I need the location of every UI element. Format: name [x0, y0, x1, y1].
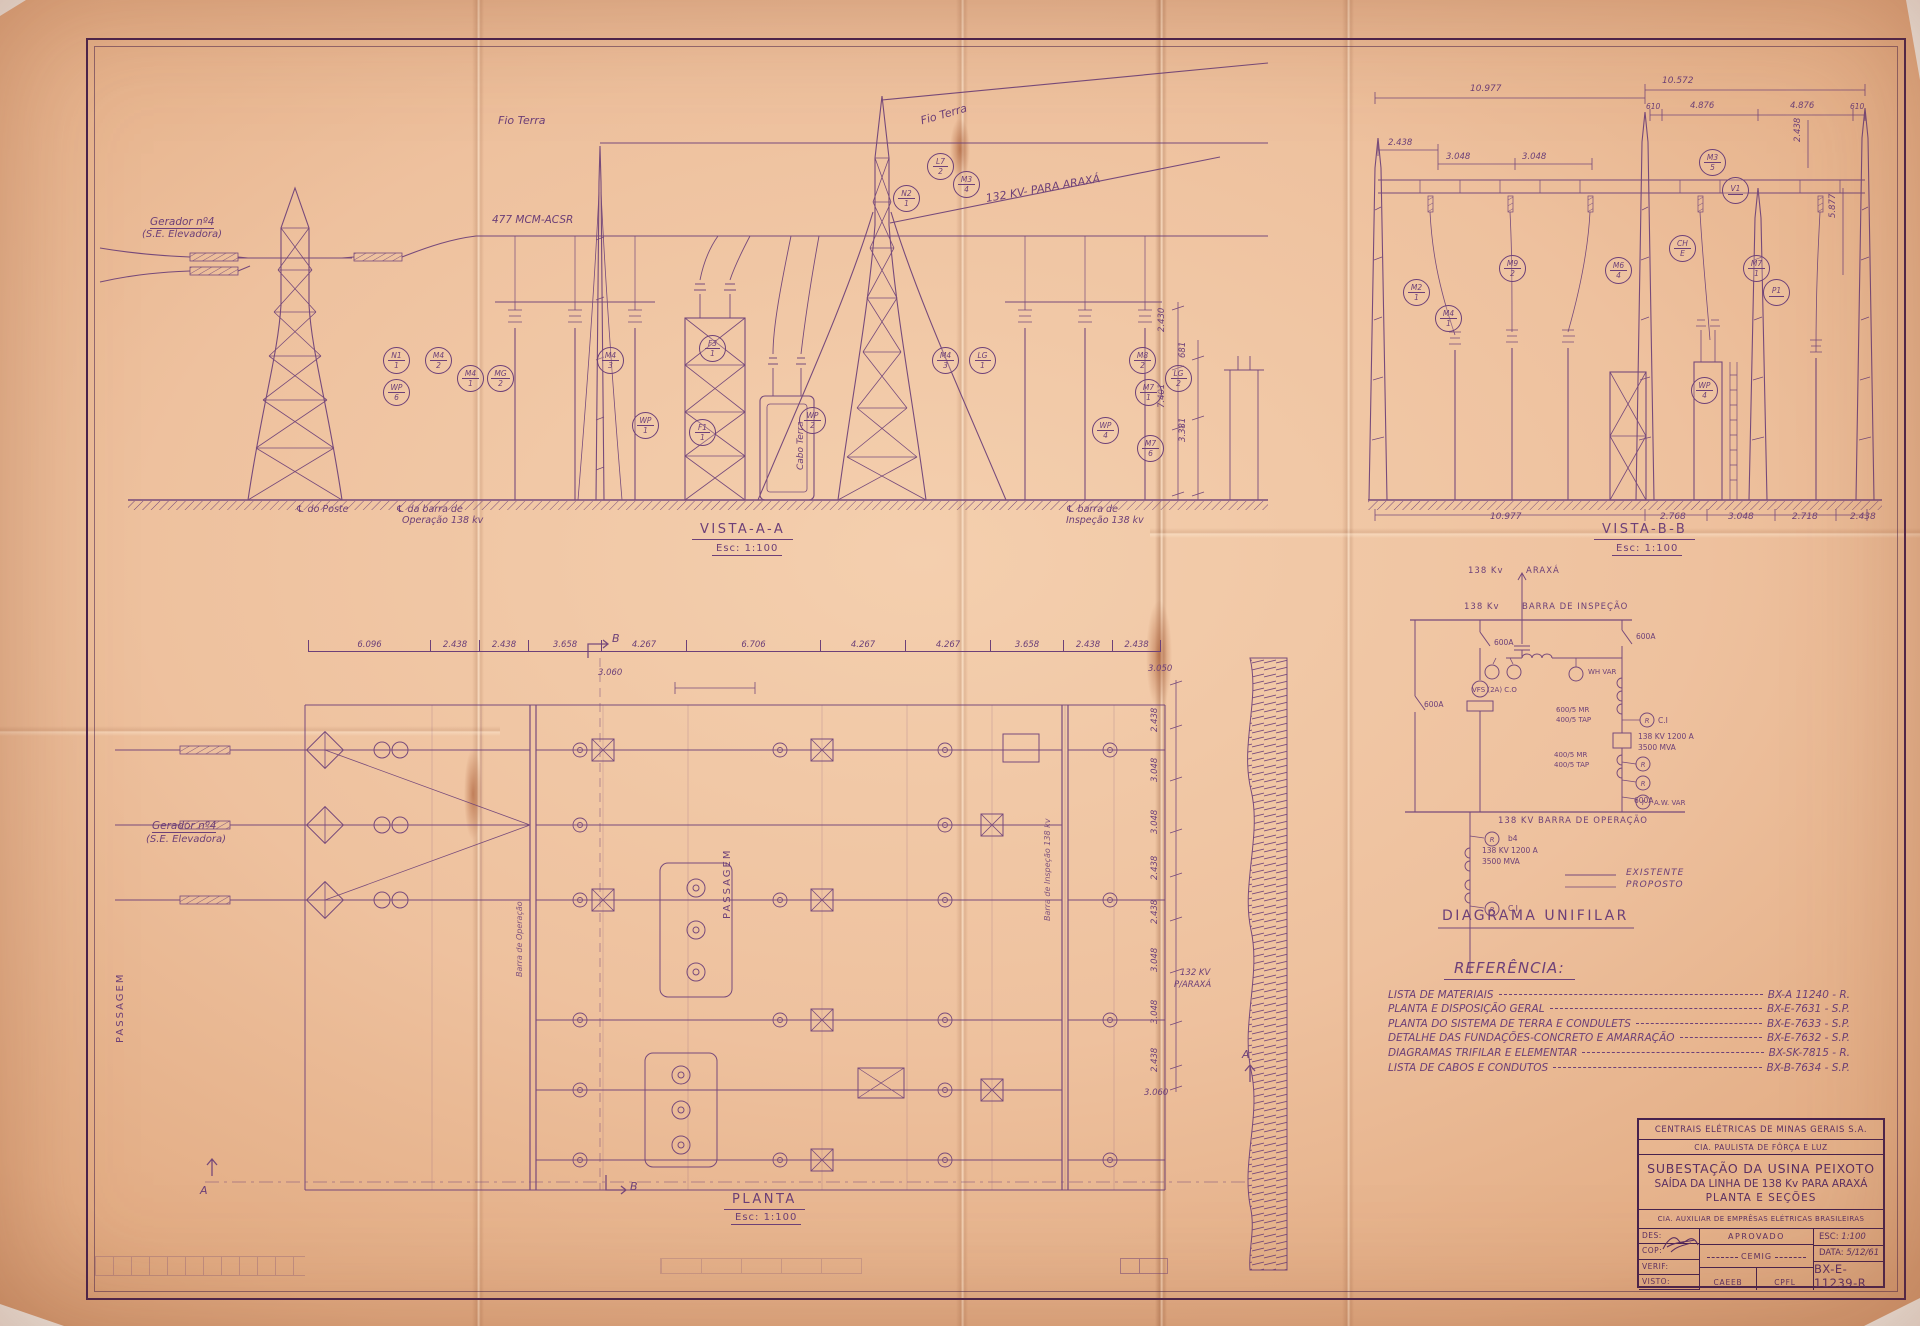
equipment-balloon: M34 — [953, 171, 980, 198]
ct-ratio-label: 400/5 MR — [1554, 751, 1587, 759]
centerline-poste-label: ℄ do Poste — [296, 504, 348, 515]
dim-label: 681 — [1178, 342, 1188, 358]
conductor-label: 477 MCM-ACSR — [492, 214, 573, 226]
planta-drawing — [100, 630, 1290, 1290]
paper-corner — [1906, 0, 1920, 80]
paper-corner — [0, 1304, 64, 1326]
des-label: DES: — [1639, 1229, 1699, 1244]
dim-label: 2.768 — [1660, 512, 1686, 522]
legend-existente-label: EXISTENTE — [1626, 868, 1684, 878]
relay-letter: R — [1641, 761, 1646, 769]
unifilar-kv-label: 138 Kv — [1468, 566, 1504, 576]
gerador-sublabel: (S.E. Elevadora) — [142, 229, 222, 240]
vista-aa-scale: Esc: 1:100 — [712, 543, 782, 556]
dim-label: 3.060 — [1144, 1088, 1168, 1098]
drawing-number: BX-E-11239-R — [1814, 1262, 1883, 1290]
relay-letter: R — [1645, 717, 1650, 725]
equipment-balloon: L72 — [927, 153, 954, 180]
section-a-label: A — [200, 1184, 208, 1197]
cpfl-cell: CPFL — [1757, 1268, 1813, 1290]
dim-label: 3.048 — [1150, 1000, 1160, 1024]
section-b-label: B — [612, 632, 620, 645]
planta-scale: Esc: 1:100 — [731, 1212, 801, 1225]
unifilar-title: DIAGRAMA UNIFILAR — [1442, 908, 1629, 924]
centerline-operacao-label2: Operação 138 kv — [402, 515, 483, 526]
reference-title: REFERÊNCIA: — [1444, 959, 1575, 980]
drawing-title-1: SUBESTAÇÃO DA USINA PEIXOTO — [1647, 1161, 1875, 1176]
barra-operacao-label: Barra de Operação — [515, 901, 524, 977]
dim-label: 3.050 — [1148, 664, 1172, 674]
section-a-label: A — [1242, 1048, 1250, 1061]
reference-item: LISTA DE MATERIAISBX-A 11240 - R. — [1388, 989, 1850, 1001]
equipment-balloon: WP2 — [799, 407, 826, 434]
dim-label: 2.438 — [1150, 856, 1160, 880]
dim-label: 2.438 — [1850, 512, 1876, 522]
dim-label: 2.438 — [1150, 900, 1160, 924]
ct-ratio-label: 600/5 MR — [1556, 706, 1589, 714]
equipment-balloon: WP6 — [383, 379, 410, 406]
equipment-balloon: M76 — [1137, 435, 1164, 462]
switch-rating-label: 600A — [1494, 638, 1513, 647]
equipment-balloon: N11 — [383, 347, 410, 374]
company-name-caeeb: CIA. AUXILIAR DE EMPRÊSAS ELÉTRICAS BRAS… — [1639, 1210, 1883, 1229]
equipment-balloon: M41 — [457, 365, 484, 392]
approval-column: APROVADO CEMIG CAEEB CPFL — [1700, 1229, 1814, 1290]
ct-ratio-label: 400/5 TAP — [1554, 761, 1589, 769]
dim-label: 2.718 — [1792, 512, 1818, 522]
drawing-title-2: SAÍDA DA LINHA DE 138 Kv PARA ARAXÁ — [1655, 1178, 1868, 1190]
revision-box-faint — [1120, 1258, 1168, 1274]
reference-item: LISTA DE CABOS E CONDUTOSBX-B-7634 - S.P… — [1388, 1062, 1850, 1074]
relay-label: b4 — [1508, 834, 1518, 843]
unifilar-kv-label: 138 Kv — [1464, 602, 1500, 612]
barra-inspecao-label: BARRA DE INSPEÇÃO — [1522, 602, 1628, 612]
equipment-balloon: M71 — [1743, 255, 1770, 282]
paper-corner — [1864, 1298, 1920, 1326]
plan-dim-row: 6.096 2.438 2.438 3.658 4.267 6.706 4.26… — [308, 640, 1161, 652]
barra-operacao-label: 138 KV BARRA DE OPERAÇÃO — [1498, 816, 1648, 826]
equipment-balloon: M71 — [1135, 379, 1162, 406]
kv-araxa-label2: P/ARAXÁ — [1174, 980, 1211, 990]
equipment-balloon: WP1 — [632, 412, 659, 439]
dim-label: 3.048 — [1728, 512, 1754, 522]
gerador-sublabel: (S.E. Elevadora) — [146, 834, 226, 845]
reference-item: DETALHE DAS FUNDAÇÕES-CONCRETO E AMARRAÇ… — [1388, 1032, 1850, 1044]
dim-label: 3.048 — [1446, 152, 1470, 162]
dim-label: 4.876 — [1790, 101, 1814, 111]
breaker-rating-label: 138 KV 1200 A — [1638, 732, 1694, 741]
aprovado-label: APROVADO — [1700, 1229, 1813, 1245]
dim-label: 5.877 — [1828, 194, 1838, 218]
equipment-balloon: P1 — [1763, 279, 1790, 306]
cop-label: COP: — [1639, 1244, 1699, 1259]
paper-corner — [0, 0, 26, 16]
passagem-label: PASSAGEM — [722, 849, 733, 919]
reference-item: PLANTA E DISPOSIÇÃO GERALBX-E-7631 - S.P… — [1388, 1003, 1850, 1015]
info-column: ESC: 1:100 DATA: 5/12/61 BX-E-11239-R — [1814, 1229, 1883, 1290]
dim-label: 610 — [1850, 102, 1864, 111]
vista-bb-drawing — [1360, 60, 1900, 530]
equipment-balloon: CHE — [1669, 235, 1696, 262]
centerline-inspecao-label: ℄ barra de — [1066, 504, 1118, 515]
equipment-balloon: LG2 — [1165, 365, 1192, 392]
vista-aa-title: VISTA-A-A — [692, 522, 793, 540]
legend-proposto-label: PROPOSTO — [1626, 880, 1684, 890]
equipment-balloon: M41 — [1435, 305, 1462, 332]
title-block: CENTRAIS ELÉTRICAS DE MINAS GERAIS S.A. … — [1637, 1118, 1885, 1288]
dim-label: 2.438 — [1150, 708, 1160, 732]
unifilar-araxa-label: ARAXÁ — [1526, 566, 1560, 576]
relay-letter: R — [1490, 836, 1495, 844]
passagem-label: PASSAGEM — [115, 973, 126, 1043]
equipment-balloon: M43 — [597, 347, 624, 374]
relay-letter: R — [1641, 780, 1646, 788]
switch-rating-label: 600A — [1424, 700, 1443, 709]
fio-terra-label: Fio Terra — [498, 114, 546, 127]
relay-label: C.I — [1658, 716, 1668, 725]
caeeb-cell: CAEEB — [1700, 1268, 1757, 1290]
dim-label: 610 — [1646, 102, 1660, 111]
dim-label: 3.048 — [1150, 810, 1160, 834]
signature-column: DES: COP: VERIF: VISTO: — [1639, 1229, 1700, 1290]
dim-label: 2.430 — [1157, 308, 1167, 332]
switch-rating-label: 600A — [1634, 796, 1653, 805]
gerador-label: Gerador nº4 — [152, 820, 216, 833]
company-name-cpfl: CIA. PAULISTA DE FÔRÇA E LUZ — [1639, 1140, 1883, 1155]
centerline-inspecao-label2: Inspeção 138 kv — [1066, 515, 1144, 526]
equipment-balloon: MG2 — [487, 365, 514, 392]
equipment-balloon: M82 — [1129, 347, 1156, 374]
equipment-balloon: WP4 — [1691, 377, 1718, 404]
verif-label: VERIF: — [1639, 1260, 1699, 1275]
planta-title: PLANTA — [724, 1192, 805, 1210]
equipment-balloon: M92 — [1499, 255, 1526, 282]
equipment-balloon: M35 — [1699, 149, 1726, 176]
reference-list: REFERÊNCIA: LISTA DE MATERIAISBX-A 11240… — [1388, 958, 1850, 1074]
drawing-title-3: PLANTA E SEÇÕES — [1706, 1192, 1817, 1204]
breaker-rating-label: 138 KV 1200 A — [1482, 846, 1538, 855]
dim-label: 2.438 — [1793, 118, 1803, 142]
vista-aa-drawing — [100, 60, 1290, 560]
dim-label: 2.438 — [1388, 138, 1412, 148]
dim-label: 4.876 — [1690, 101, 1714, 111]
stamp-faint — [660, 1258, 862, 1274]
barra-inspecao-label: Barra de Inspeção 138 kv — [1043, 819, 1052, 921]
scale-cell: ESC: 1:100 — [1814, 1229, 1883, 1246]
equipment-balloon: M21 — [1403, 279, 1430, 306]
kv-araxa-label: 132 KV — [1180, 968, 1210, 978]
centerline-operacao-label: ℄ da barra de — [396, 504, 463, 515]
dim-label: 10.977 — [1490, 512, 1522, 522]
company-name-cemig: CENTRAIS ELÉTRICAS DE MINAS GERAIS S.A. — [1639, 1120, 1883, 1140]
instrument-label: A.W. VAR — [1654, 799, 1685, 807]
equipment-balloon: F31 — [699, 335, 726, 362]
equipment-balloon: M42 — [425, 347, 452, 374]
equipment-balloon: M64 — [1605, 257, 1632, 284]
instrument-label: VFS (2A) C.O — [1472, 686, 1517, 694]
scale-bar-faint — [95, 1256, 305, 1276]
dim-label: 3.048 — [1150, 758, 1160, 782]
instrument-label: WH VAR — [1588, 668, 1616, 676]
visto-label: VISTO: — [1639, 1275, 1699, 1290]
blueprint-sheet: Fio Terra Fio Terra 477 MCM-ACSR 132 KV-… — [0, 0, 1920, 1326]
dim-label: 3.381 — [1178, 418, 1188, 442]
reference-item: DIAGRAMAS TRIFILAR E ELEMENTARBX-SK-7815… — [1388, 1047, 1850, 1059]
equipment-balloon: WP4 — [1092, 417, 1119, 444]
date-cell: DATA: 5/12/61 — [1814, 1246, 1883, 1263]
section-b-label: B — [630, 1180, 638, 1193]
dim-label: 2.438 — [1150, 1048, 1160, 1072]
dim-label: 10.572 — [1662, 76, 1694, 86]
dim-label: 10.977 — [1470, 84, 1502, 94]
switch-rating-label: 600A — [1636, 632, 1655, 641]
ct-ratio-label: 400/5 TAP — [1556, 716, 1591, 724]
equipment-balloon: M43 — [932, 347, 959, 374]
vista-bb-title: VISTA-B-B — [1594, 522, 1695, 540]
equipment-balloon: F11 — [689, 419, 716, 446]
cemig-cell: CEMIG — [1700, 1245, 1813, 1268]
breaker-rating-label: 3500 MVA — [1482, 857, 1520, 866]
gerador-label: Gerador nº4 — [150, 216, 214, 229]
equipment-balloon: LG1 — [969, 347, 996, 374]
dim-label: 3.048 — [1150, 948, 1160, 972]
dim-label: 3.060 — [598, 668, 622, 678]
reference-item: PLANTA DO SISTEMA DE TERRA E CONDULETSBX… — [1388, 1018, 1850, 1030]
equipment-balloon: N21 — [893, 185, 920, 212]
equipment-balloon: V1 — [1722, 177, 1749, 204]
dim-label: 3.048 — [1522, 152, 1546, 162]
breaker-rating-label: 3500 MVA — [1638, 743, 1676, 752]
